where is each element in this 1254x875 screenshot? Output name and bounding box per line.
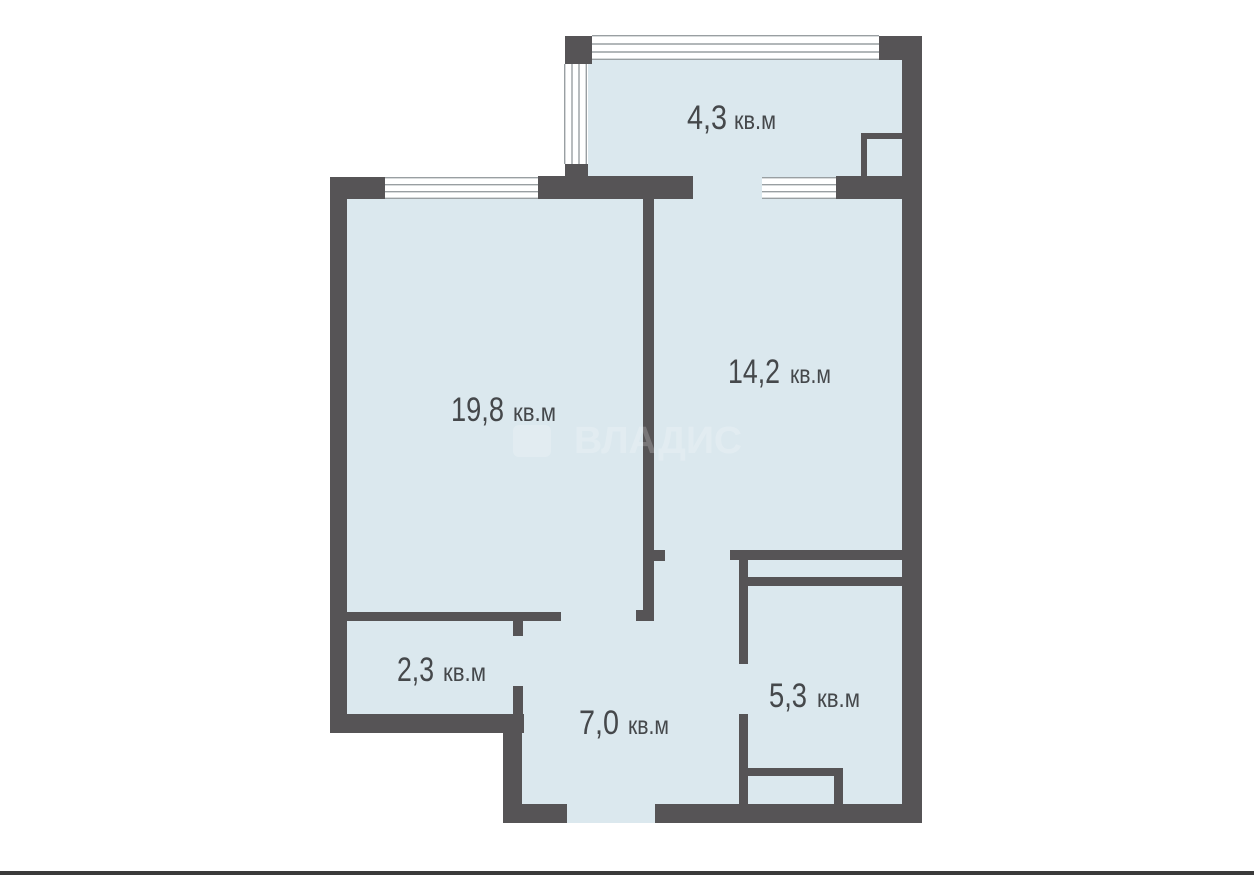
svg-text:кв.м: кв.м [817, 683, 860, 713]
svg-text:кв.м: кв.м [790, 359, 831, 389]
svg-text:19,8: 19,8 [451, 391, 504, 429]
svg-text:кв.м: кв.м [513, 397, 556, 427]
svg-text:2,3: 2,3 [397, 651, 434, 689]
svg-text:5,3: 5,3 [769, 677, 807, 715]
svg-text:4,3: 4,3 [687, 99, 727, 137]
svg-text:7,0: 7,0 [579, 704, 619, 742]
svg-text:кв.м: кв.м [443, 657, 486, 687]
svg-text:кв.м: кв.м [734, 105, 776, 135]
svg-text:кв.м: кв.м [628, 710, 669, 740]
svg-text:14,2: 14,2 [728, 353, 780, 391]
svg-text:ВЛАДИС: ВЛАДИС [574, 420, 742, 462]
